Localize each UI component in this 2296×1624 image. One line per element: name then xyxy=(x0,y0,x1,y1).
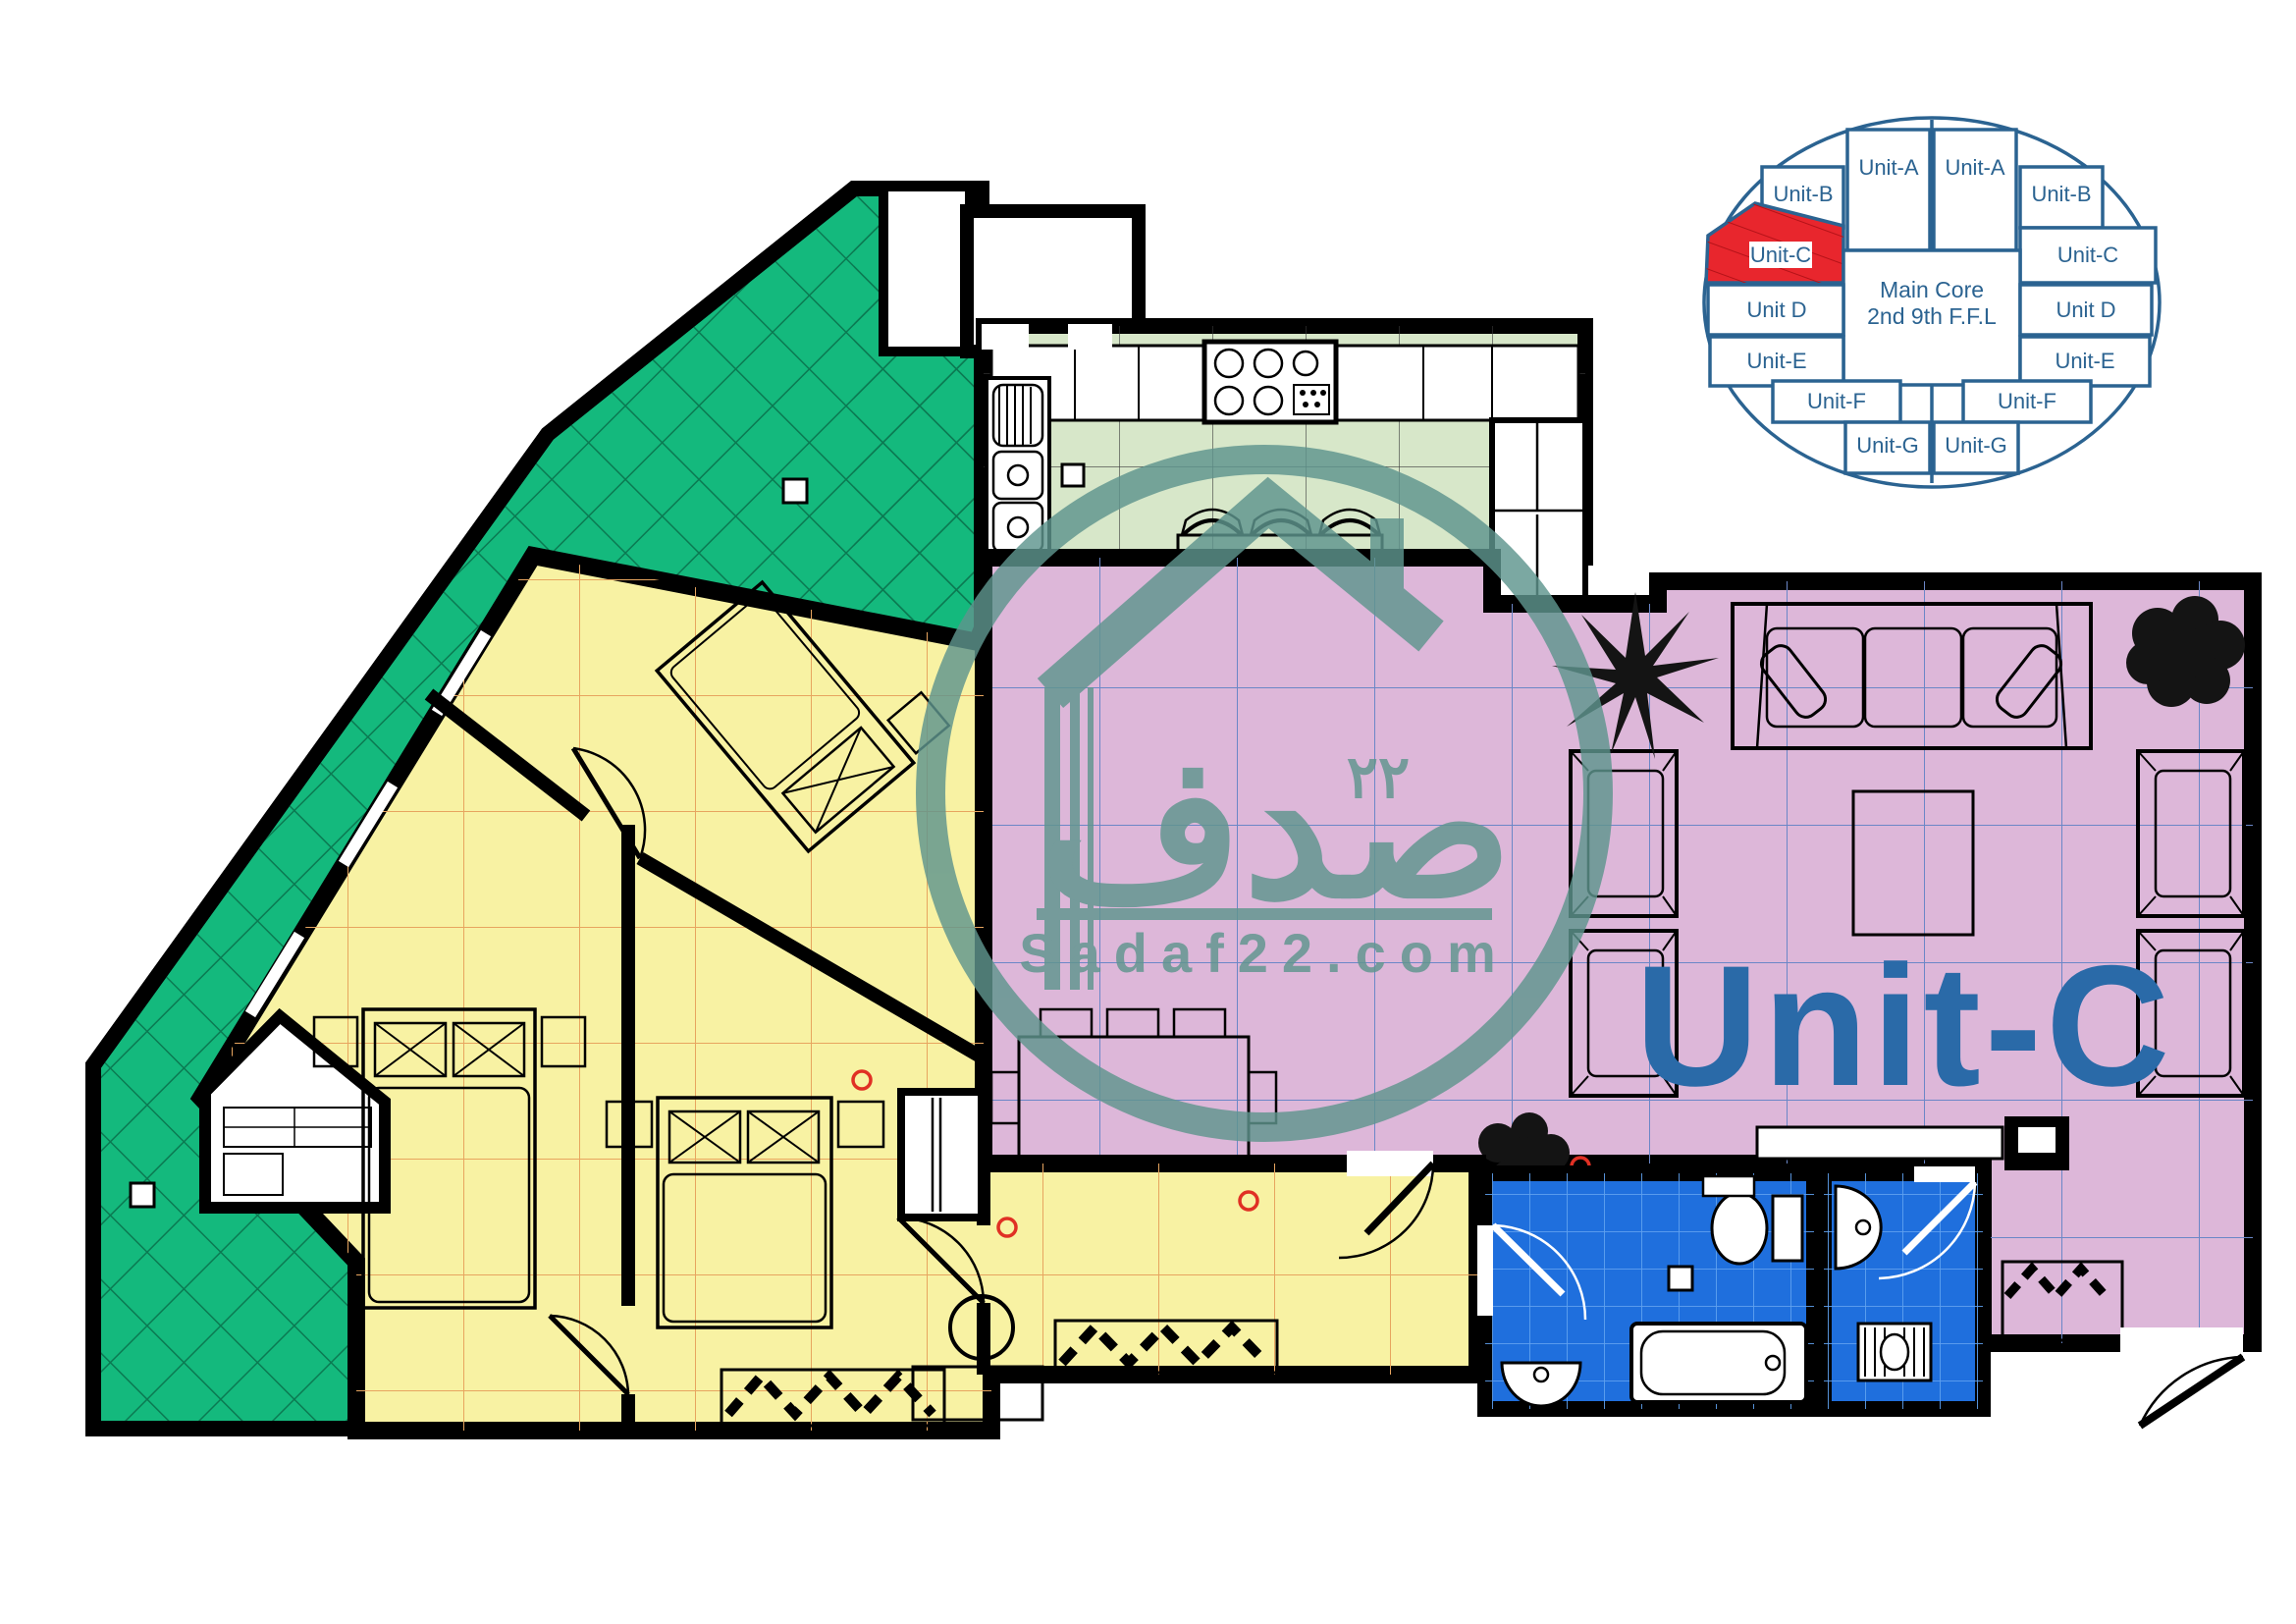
keyplan-label: Unit-E xyxy=(1746,349,1806,373)
bathtub xyxy=(1631,1324,1806,1402)
keyplan-label: Unit-G xyxy=(1856,433,1919,458)
bath-drain xyxy=(1669,1267,1692,1290)
keyplan-label: Unit-E xyxy=(2055,349,2114,373)
bathroom-guest xyxy=(1824,1166,1983,1409)
bathroom-main xyxy=(1477,1173,1814,1409)
keyplan-label-highlighted: Unit-C xyxy=(1750,243,1811,267)
entry-door xyxy=(2120,1327,2243,1426)
keyplan-label: Unit-A xyxy=(1858,155,1918,180)
keyplan-cell-unit-a-right xyxy=(1934,130,2016,250)
watermark-brand-arabic: صدف xyxy=(1040,719,1513,938)
floor-plan-drawing: صدف ٢٢ Sadaf22.com Unit-C Unit-A Unit-A … xyxy=(0,0,2296,1624)
unit-title: Unit-C xyxy=(1635,931,2174,1122)
watermark-site-text: Sadaf22.com xyxy=(1019,922,1510,984)
sliding-closet xyxy=(901,1092,982,1218)
watermark-number-arabic: ٢٢ xyxy=(1347,744,1410,810)
stove xyxy=(1204,342,1336,422)
keyplan-label: Unit-F xyxy=(1998,389,2056,413)
keyplan-cell-unit-a-left xyxy=(1847,130,1930,250)
terrace-notch xyxy=(883,187,970,352)
keyplan-label: Unit-B xyxy=(1773,182,1833,206)
keyplan-core-label-2: 2nd 9th F.F.L xyxy=(1867,303,1997,329)
keyplan-label: Unit-A xyxy=(1945,155,2004,180)
kitchen-drain xyxy=(1062,464,1084,486)
terrace-drain xyxy=(131,1183,154,1207)
terrace-drain xyxy=(783,479,807,503)
keyplan-label: Unit-G xyxy=(1945,433,2007,458)
keyplan-label: Unit D xyxy=(2056,298,2115,322)
bidet xyxy=(1858,1324,1931,1380)
tv-console xyxy=(1757,1127,2002,1159)
floor-plan-sheet: صدف ٢٢ Sadaf22.com Unit-C Unit-A Unit-A … xyxy=(0,0,2296,1624)
keyplan-label: Unit-F xyxy=(1807,389,1866,413)
keyplan-label: Unit-B xyxy=(2031,182,2091,206)
keyplan-core-label-1: Main Core xyxy=(1880,277,1984,302)
bath-shelf xyxy=(1703,1176,1754,1196)
keyplan-label: Unit-C xyxy=(2057,243,2118,267)
keyplan-label: Unit D xyxy=(1746,298,1806,322)
toilet xyxy=(1712,1193,1802,1264)
